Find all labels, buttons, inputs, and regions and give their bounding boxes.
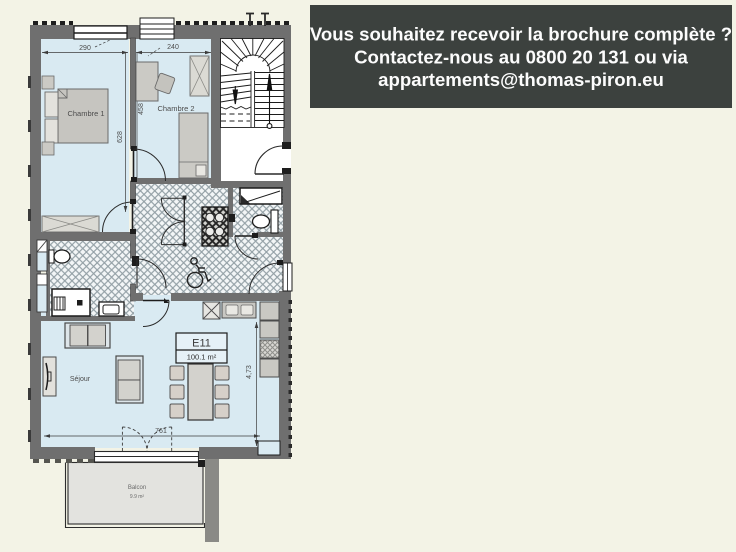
svg-text:Balcon: Balcon <box>128 485 146 491</box>
svg-text:Vous souhaitez recevoir la bro: Vous souhaitez recevoir la brochure comp… <box>310 24 732 45</box>
svg-text:Chambre 2: Chambre 2 <box>157 104 194 113</box>
svg-text:458: 458 <box>138 103 145 115</box>
svg-text:appartements@thomas-piron.eu: appartements@thomas-piron.eu <box>378 69 664 90</box>
svg-text:9.9 m²: 9.9 m² <box>130 494 145 500</box>
svg-text:4,73: 4,73 <box>246 365 253 379</box>
svg-text:Contactez-nous au 0800 20 131: Contactez-nous au 0800 20 131 ou via <box>354 47 688 68</box>
svg-text:628: 628 <box>117 131 124 143</box>
svg-text:290: 290 <box>79 45 91 52</box>
svg-text:E11: E11 <box>192 338 211 350</box>
svg-text:Chambre 1: Chambre 1 <box>67 109 104 118</box>
svg-text:240: 240 <box>167 44 179 51</box>
svg-text:Séjour: Séjour <box>70 376 91 383</box>
svg-text:100.1 m²: 100.1 m² <box>187 353 217 362</box>
